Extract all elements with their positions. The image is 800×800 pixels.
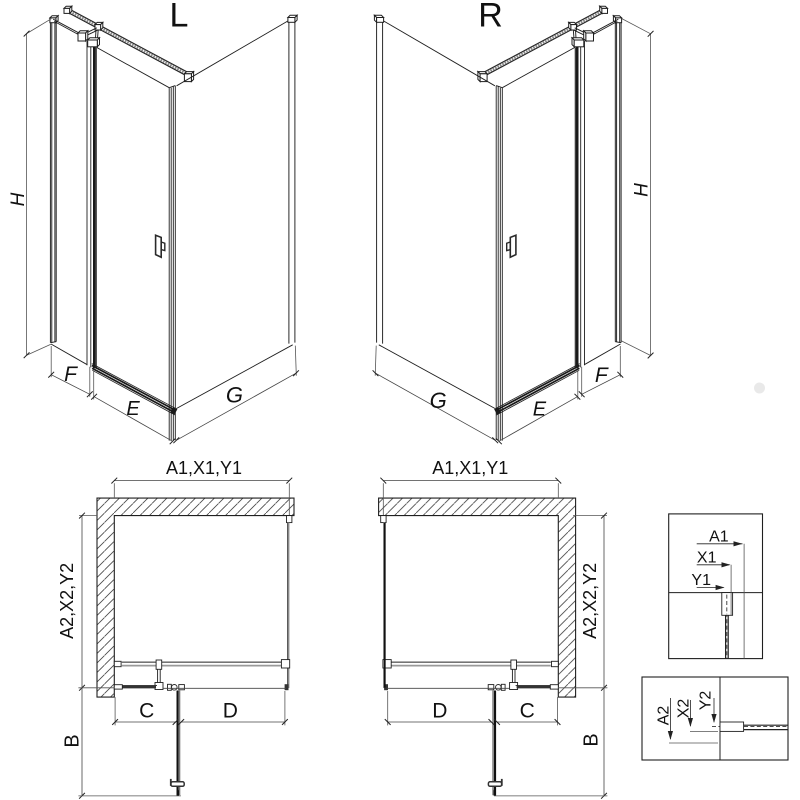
svg-text:G: G xyxy=(226,383,243,408)
svg-text:A1,X1,Y1: A1,X1,Y1 xyxy=(166,458,242,478)
svg-text:F: F xyxy=(595,364,609,387)
svg-text:D: D xyxy=(223,699,238,722)
svg-text:E: E xyxy=(533,399,547,421)
svg-text:C: C xyxy=(520,699,535,722)
svg-text:A1: A1 xyxy=(709,529,729,546)
svg-text:Y2: Y2 xyxy=(698,691,715,711)
svg-text:X2: X2 xyxy=(676,699,693,719)
svg-text:A2,X2,Y2: A2,X2,Y2 xyxy=(57,563,77,639)
svg-text:R: R xyxy=(478,0,503,35)
svg-text:Y1: Y1 xyxy=(691,572,711,589)
svg-text:A1,X1,Y1: A1,X1,Y1 xyxy=(432,458,508,478)
svg-text:F: F xyxy=(64,363,78,386)
svg-text:H: H xyxy=(632,183,653,197)
svg-text:H: H xyxy=(8,192,29,206)
svg-text:A2: A2 xyxy=(656,706,673,726)
svg-text:E: E xyxy=(126,398,140,420)
svg-text:L: L xyxy=(170,0,189,35)
svg-text:A2,X2,Y2: A2,X2,Y2 xyxy=(580,563,600,639)
svg-text:X1: X1 xyxy=(697,549,717,566)
svg-text:D: D xyxy=(432,699,447,722)
svg-text:B: B xyxy=(62,734,84,747)
svg-text:C: C xyxy=(139,699,154,722)
svg-text:B: B xyxy=(581,733,603,746)
svg-text:G: G xyxy=(430,388,447,413)
